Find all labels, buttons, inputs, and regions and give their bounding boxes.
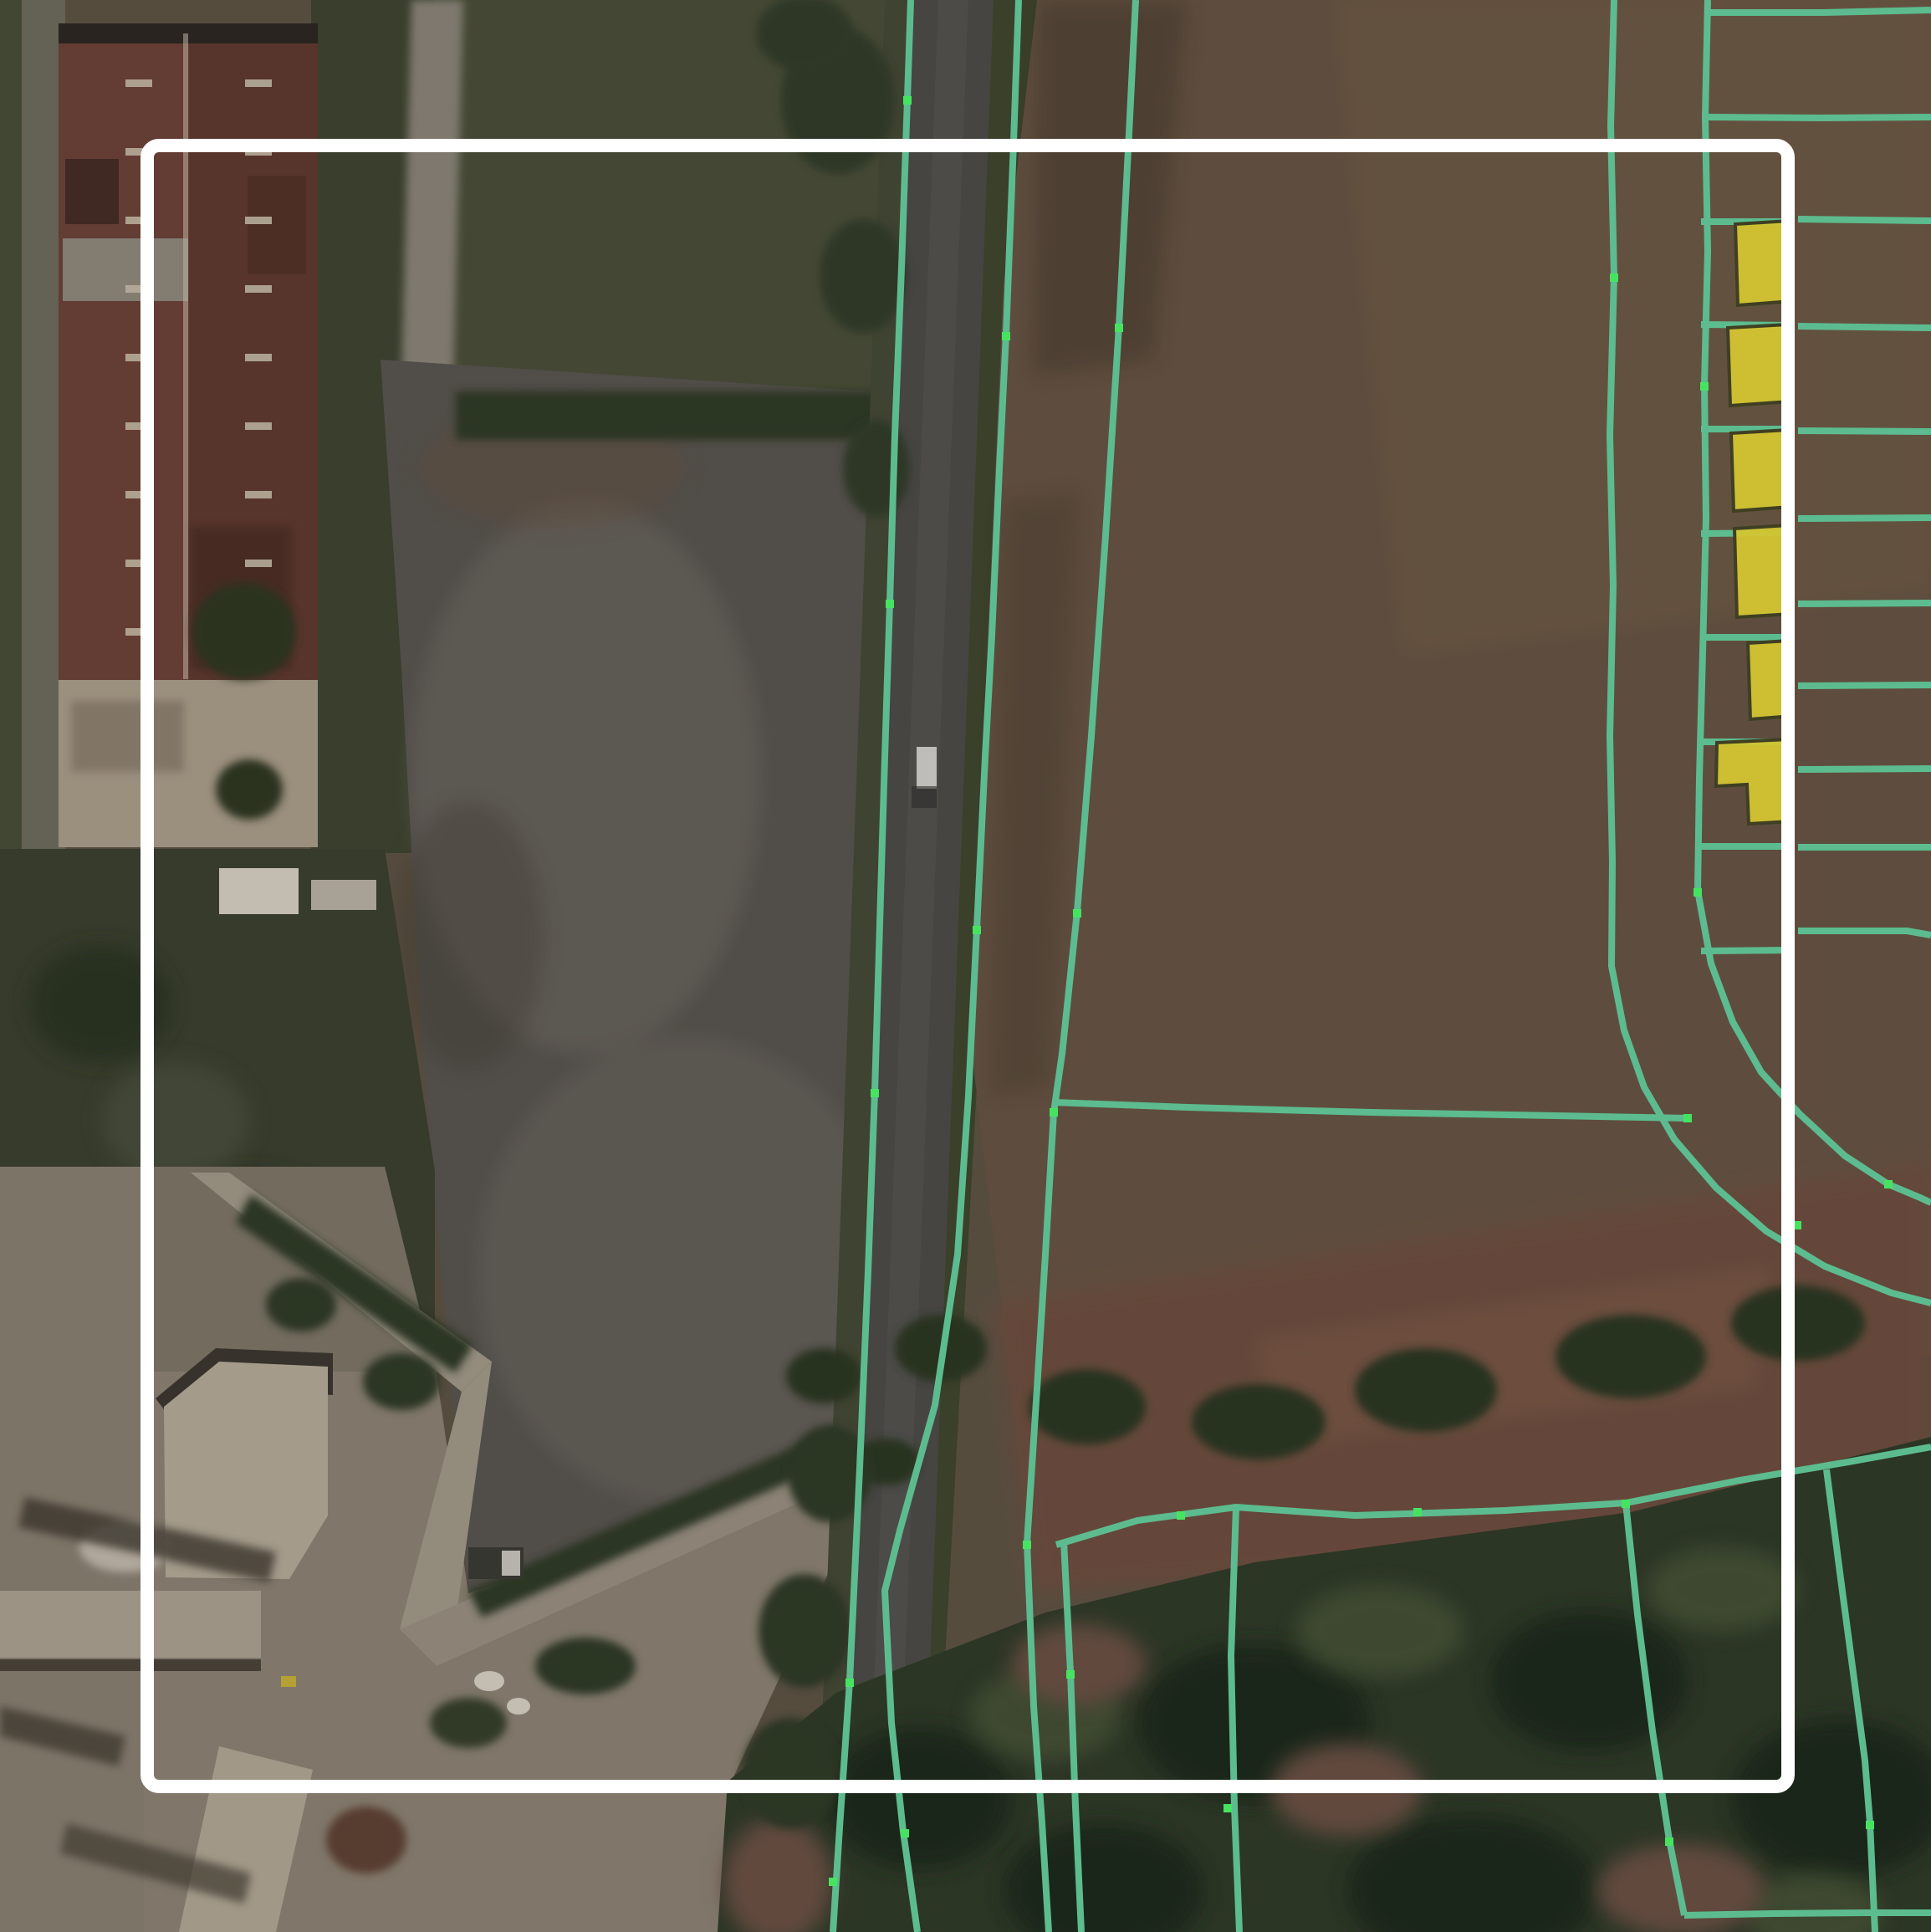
- parcel-vertex-6: [973, 926, 981, 934]
- forest-bottom-line: [1684, 1913, 1931, 1915]
- satellite-map-canvas[interactable]: [0, 0, 1931, 1932]
- parcel-vertex-0: [903, 96, 912, 105]
- parcel-vertex-18: [1665, 1837, 1673, 1846]
- parcel-vertex-2: [871, 1089, 879, 1097]
- strip-line-full-2: [1708, 117, 1931, 118]
- strip-line-e-2: [1798, 326, 1931, 328]
- strip-line-e-5: [1798, 603, 1931, 604]
- strip-line-e-3: [1798, 431, 1931, 432]
- parcel-vertex-4: [829, 1878, 837, 1886]
- parcel-vertex-9: [1073, 909, 1081, 917]
- parcel-vertex-13: [1700, 382, 1709, 391]
- map-viewport: [0, 0, 1931, 1932]
- parcel-vertex-10: [1050, 1108, 1058, 1117]
- parcel-vertex-19: [1066, 1670, 1075, 1679]
- parcel-vertex-14: [1693, 888, 1702, 897]
- parcel-vertex-22: [1177, 1511, 1185, 1520]
- parcel-vertex-15: [1683, 1114, 1692, 1122]
- strip-line-full-1: [1708, 10, 1931, 13]
- strip-line-e-4: [1798, 518, 1931, 519]
- parcel-vertex-23: [1413, 1508, 1422, 1516]
- parcel-vertex-21: [1866, 1821, 1874, 1829]
- parcel-vertex-12: [1610, 273, 1618, 282]
- parcel-vertex-1: [886, 600, 894, 608]
- parcel-vertex-11: [1023, 1541, 1031, 1549]
- building-2[interactable]: [1728, 325, 1791, 406]
- parcel-vertex-5: [1002, 332, 1010, 340]
- parcel-vertex-7: [901, 1829, 909, 1837]
- parcel-vertex-16: [1884, 1180, 1893, 1188]
- parcel-vertex-20: [1223, 1804, 1232, 1812]
- strip-line-e-1: [1798, 219, 1931, 221]
- strip-line-e-7: [1798, 769, 1931, 769]
- strip-line-w-8: [1701, 950, 1795, 951]
- strip-line-e-6: [1798, 685, 1931, 686]
- parcel-vertex-17: [1622, 1500, 1630, 1508]
- parcel-vertex-3: [845, 1679, 854, 1687]
- parcel-vertex-8: [1115, 324, 1123, 332]
